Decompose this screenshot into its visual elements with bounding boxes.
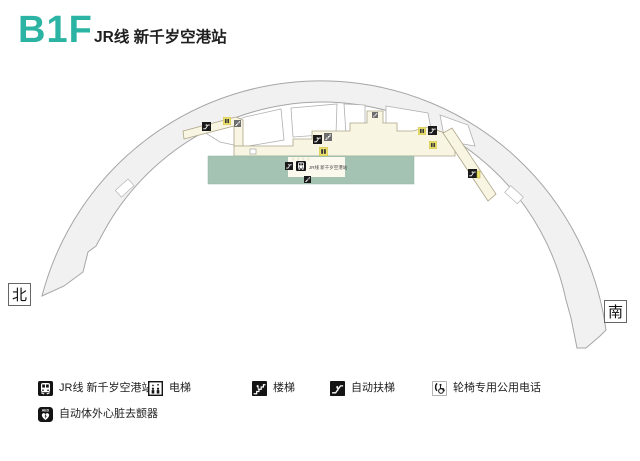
legend-label: 楼梯	[273, 381, 295, 396]
elevator-icon	[429, 141, 437, 149]
stairs-icon	[324, 133, 332, 141]
escalator-icon	[330, 381, 345, 396]
elevator-icon	[223, 117, 231, 125]
north-marker: 北	[8, 283, 31, 306]
legend-label: 轮椅专用公用电话	[453, 381, 541, 396]
escalator-icon	[202, 122, 211, 131]
legend-item-escalator: 自动扶梯	[330, 381, 432, 396]
escalator-icon	[285, 162, 293, 170]
aed-icon	[38, 407, 53, 422]
jr-train-icon	[296, 161, 306, 171]
elevator-icon	[148, 381, 163, 396]
legend-label: JR线 新千岁空港站	[59, 381, 153, 396]
floor-map-page: B1F JR线 新千岁空港站	[0, 0, 640, 461]
escalator-icon	[428, 126, 437, 135]
elevator-icon	[418, 127, 426, 135]
station-map-label: JR线 新千岁空港站	[309, 164, 348, 171]
wheelchair-phone-icon	[432, 381, 447, 396]
legend: JR线 新千岁空港站 电梯 楼梯 自动扶梯 轮椅专用公用电话	[38, 381, 616, 433]
legend-item-jr-station: JR线 新千岁空港站	[38, 381, 148, 396]
legend-item-elevator: 电梯	[148, 381, 252, 396]
stairs-icon	[250, 149, 256, 154]
south-label: 南	[608, 301, 623, 322]
elevator-icon	[319, 147, 328, 156]
escalator-icon	[468, 169, 477, 178]
north-label: 北	[12, 284, 27, 305]
stairs-icon	[252, 381, 267, 396]
legend-label: 自动扶梯	[351, 381, 395, 396]
elevator-icon	[477, 171, 480, 178]
escalator-icon	[313, 135, 322, 144]
legend-item-stairs: 楼梯	[252, 381, 330, 396]
legend-label: 电梯	[169, 381, 191, 396]
legend-row: JR线 新千岁空港站 电梯 楼梯 自动扶梯 轮椅专用公用电话	[38, 381, 616, 396]
stairs-icon	[304, 176, 311, 183]
legend-label: 自动体外心脏去颤器	[59, 407, 158, 422]
jr-train-icon	[38, 381, 53, 396]
legend-item-aed: 自动体外心脏去颤器	[38, 407, 158, 422]
legend-row: 自动体外心脏去颤器	[38, 407, 616, 422]
legend-item-wheelchair-phone: 轮椅专用公用电话	[432, 381, 541, 396]
stairs-icon	[372, 112, 378, 118]
south-marker: 南	[604, 300, 627, 323]
stairs-icon	[234, 120, 241, 127]
